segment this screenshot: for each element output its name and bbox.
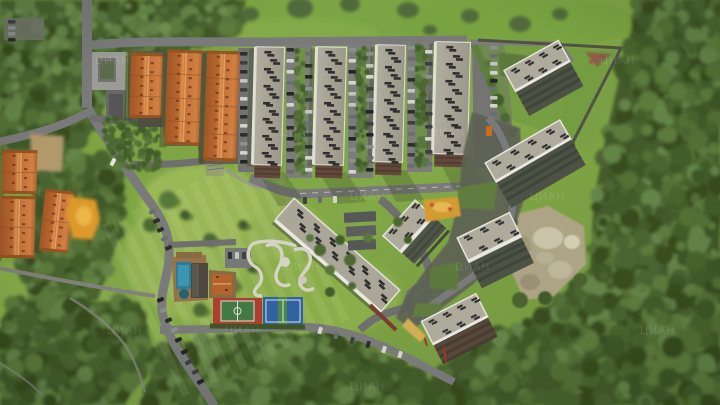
svg-text:ЦИАН: ЦИАН xyxy=(95,55,130,67)
svg-text:ЦИАН: ЦИАН xyxy=(350,191,385,203)
svg-text:ЦИАН: ЦИАН xyxy=(455,261,490,273)
svg-text:ЦИАН: ЦИАН xyxy=(285,261,320,273)
svg-text:ЦИАН: ЦИАН xyxy=(280,127,315,139)
svg-text:ЦИАН: ЦИАН xyxy=(430,127,465,139)
svg-text:ЦИАН: ЦИАН xyxy=(107,325,142,337)
svg-text:ЦИАН: ЦИАН xyxy=(225,325,260,337)
svg-text:ЦИАН: ЦИАН xyxy=(530,191,565,203)
svg-text:ЦИАН: ЦИАН xyxy=(640,325,675,337)
svg-text:ЦИАН: ЦИАН xyxy=(350,381,385,393)
svg-text:ЦИАН: ЦИАН xyxy=(600,55,635,67)
